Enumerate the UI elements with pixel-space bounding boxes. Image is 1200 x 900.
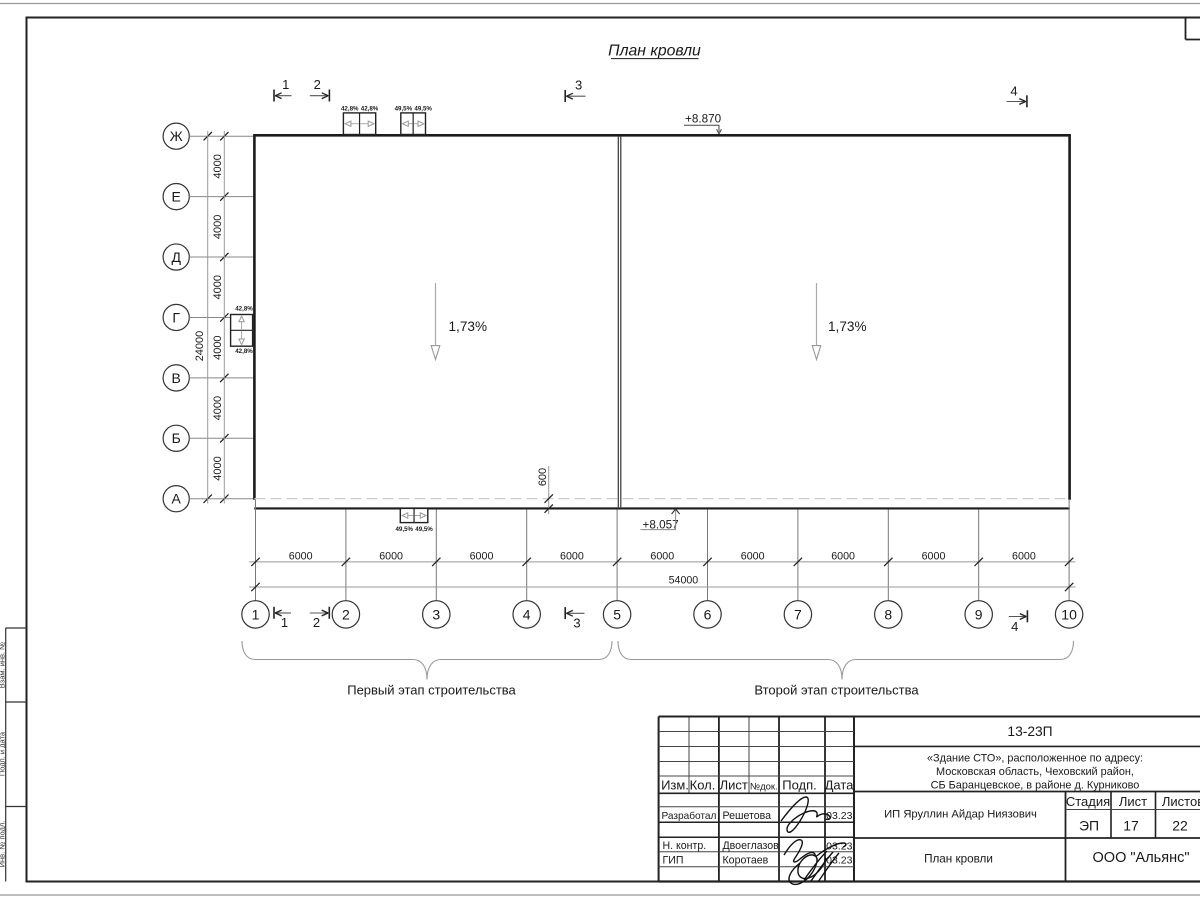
- svg-text:2: 2: [342, 606, 350, 622]
- svg-text:6000: 6000: [922, 550, 946, 562]
- svg-text:3: 3: [573, 616, 580, 631]
- svg-text:Н. контр.: Н. контр.: [663, 840, 707, 852]
- svg-text:42,8%: 42,8%: [361, 105, 379, 112]
- svg-text:План кровли: План кровли: [924, 853, 993, 866]
- svg-text:4000: 4000: [212, 275, 224, 299]
- svg-text:4000: 4000: [212, 154, 224, 178]
- svg-text:Московская область, Чеховский: Московская область, Чеховский район,: [936, 766, 1134, 778]
- svg-text:Разработал: Разработал: [662, 810, 717, 822]
- svg-text:6000: 6000: [379, 550, 403, 562]
- svg-text:Дата: Дата: [825, 777, 855, 792]
- svg-text:Кол.: Кол.: [690, 777, 716, 792]
- svg-text:Подп. и дата: Подп. и дата: [0, 731, 7, 776]
- svg-text:ЭП: ЭП: [1079, 818, 1099, 834]
- svg-text:6000: 6000: [650, 550, 674, 562]
- svg-text:4: 4: [523, 606, 531, 622]
- svg-text:Лист: Лист: [1119, 794, 1147, 809]
- svg-text:Листов: Листов: [1162, 794, 1200, 809]
- svg-text:Двоеглазов: Двоеглазов: [723, 840, 780, 852]
- svg-text:600: 600: [537, 468, 549, 486]
- svg-text:24000: 24000: [194, 331, 206, 362]
- svg-text:«Здание СТО», расположенное по: «Здание СТО», расположенное по адресу:: [927, 753, 1143, 765]
- svg-text:ООО "Альянс": ООО "Альянс": [1093, 850, 1190, 866]
- svg-text:1,73%: 1,73%: [828, 319, 867, 334]
- svg-text:7: 7: [794, 606, 802, 622]
- svg-text:13-23П: 13-23П: [1007, 724, 1052, 739]
- svg-text:3: 3: [575, 78, 582, 93]
- svg-text:4: 4: [1011, 619, 1018, 634]
- svg-text:4000: 4000: [212, 456, 224, 480]
- svg-text:Второй этап строительства: Второй этап строительства: [754, 683, 919, 698]
- svg-text:42,8%: 42,8%: [235, 348, 253, 355]
- svg-text:03.23: 03.23: [826, 840, 852, 852]
- svg-text:А: А: [172, 491, 182, 507]
- svg-text:6000: 6000: [1012, 550, 1036, 562]
- svg-text:1: 1: [282, 77, 289, 92]
- svg-text:5: 5: [613, 606, 621, 622]
- svg-text:1: 1: [281, 615, 288, 630]
- svg-text:Лист: Лист: [720, 777, 748, 792]
- svg-text:План кровли: План кровли: [608, 43, 701, 60]
- svg-text:В: В: [172, 370, 181, 386]
- svg-text:Подп.: Подп.: [782, 777, 817, 792]
- svg-text:42,8%: 42,8%: [341, 105, 359, 112]
- svg-text:1,73%: 1,73%: [449, 319, 488, 334]
- svg-text:6: 6: [704, 606, 712, 622]
- svg-text:03.23: 03.23: [826, 810, 852, 822]
- svg-text:Г: Г: [172, 309, 180, 325]
- svg-text:17: 17: [1123, 818, 1139, 834]
- svg-text:2: 2: [314, 77, 321, 92]
- svg-text:8: 8: [884, 606, 892, 622]
- svg-text:22: 22: [1172, 818, 1188, 834]
- svg-text:1: 1: [252, 606, 260, 622]
- svg-text:Ж: Ж: [170, 128, 183, 144]
- svg-text:6000: 6000: [560, 550, 584, 562]
- svg-text:ИП Яруллин Айдар Ниязович: ИП Яруллин Айдар Ниязович: [884, 809, 1037, 821]
- svg-text:6000: 6000: [831, 550, 855, 562]
- svg-text:4000: 4000: [212, 335, 224, 359]
- svg-text:4000: 4000: [212, 215, 224, 239]
- svg-text:Первый этап строительства: Первый этап строительства: [347, 683, 516, 698]
- svg-text:3: 3: [432, 606, 440, 622]
- svg-text:49,5%: 49,5%: [415, 526, 433, 533]
- svg-text:Инв. № подл.: Инв. № подл.: [0, 821, 7, 868]
- svg-text:Стадия: Стадия: [1066, 794, 1110, 809]
- svg-text:49,5%: 49,5%: [414, 105, 432, 112]
- svg-text:4000: 4000: [212, 396, 224, 420]
- svg-text:54000: 54000: [669, 575, 699, 587]
- svg-text:Б: Б: [172, 430, 181, 446]
- svg-text:9: 9: [975, 606, 983, 622]
- svg-text:ГИП: ГИП: [663, 854, 684, 866]
- svg-text:Коротаев: Коротаев: [723, 854, 769, 866]
- svg-text:49,5%: 49,5%: [395, 105, 413, 112]
- svg-text:Решетова: Решетова: [723, 810, 772, 822]
- svg-text:Взам. инв. №: Взам. инв. №: [0, 642, 7, 688]
- svg-text:6000: 6000: [741, 550, 765, 562]
- svg-text:6000: 6000: [289, 550, 313, 562]
- svg-text:Изм.: Изм.: [661, 777, 689, 792]
- svg-text:2: 2: [313, 615, 320, 630]
- svg-text:49,5%: 49,5%: [395, 526, 413, 533]
- svg-text:42,8%: 42,8%: [235, 306, 253, 313]
- svg-text:10: 10: [1061, 606, 1077, 622]
- svg-text:№док.: №док.: [750, 782, 778, 793]
- svg-text:СБ Баранцевское, в районе д. К: СБ Баранцевское, в районе д. Курниково: [931, 780, 1140, 792]
- svg-text:4: 4: [1010, 84, 1017, 99]
- svg-text:+8.870: +8.870: [685, 113, 722, 126]
- svg-text:6000: 6000: [470, 550, 494, 562]
- svg-text:Е: Е: [172, 189, 181, 205]
- svg-text:Д: Д: [171, 249, 181, 265]
